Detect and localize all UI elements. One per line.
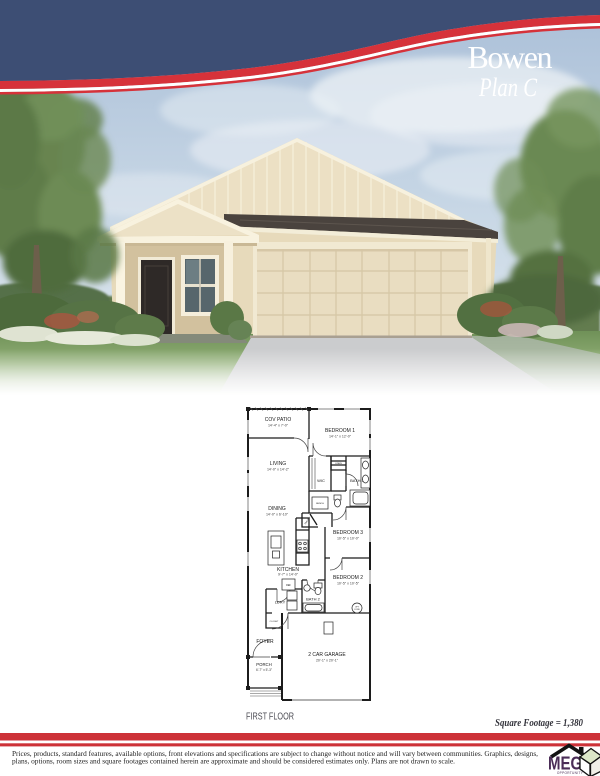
svg-text:6'-7" x 5'-3": 6'-7" x 5'-3" bbox=[256, 668, 272, 672]
svg-text:COND: COND bbox=[354, 609, 360, 611]
svg-text:BENCH: BENCH bbox=[316, 503, 324, 505]
svg-text:BATH 1: BATH 1 bbox=[350, 478, 364, 483]
svg-text:BEDROOM 2: BEDROOM 2 bbox=[333, 575, 363, 581]
svg-text:2 CAR GARAGE: 2 CAR GARAGE bbox=[308, 652, 346, 658]
svg-text:10'-5" x 10'-0": 10'-5" x 10'-0" bbox=[337, 537, 360, 541]
svg-text:14'-1" x 12'-0": 14'-1" x 12'-0" bbox=[329, 435, 352, 439]
svg-text:LINEN: LINEN bbox=[335, 463, 342, 465]
svg-text:9'-7" x 14'-0": 9'-7" x 14'-0" bbox=[278, 573, 299, 577]
svg-text:10'-5" x 10'-5": 10'-5" x 10'-5" bbox=[337, 582, 360, 586]
svg-text:BATH 2: BATH 2 bbox=[306, 597, 320, 602]
svg-text:20'-1" x 20'-1": 20'-1" x 20'-1" bbox=[316, 659, 339, 663]
svg-text:Square Footage = 1,380: Square Footage = 1,380 bbox=[495, 717, 583, 729]
svg-text:14'-0" x 6'-10": 14'-0" x 6'-10" bbox=[266, 513, 289, 517]
svg-text:FIRST FLOOR: FIRST FLOOR bbox=[246, 712, 294, 723]
svg-text:14'-4" x 7'-0": 14'-4" x 7'-0" bbox=[268, 424, 289, 428]
svg-text:FOYER: FOYER bbox=[256, 639, 274, 645]
svg-text:OPPORTUNITY: OPPORTUNITY bbox=[557, 771, 584, 775]
svg-text:BEDROOM 1: BEDROOM 1 bbox=[325, 428, 355, 434]
svg-text:BEDROOM 3: BEDROOM 3 bbox=[333, 530, 363, 536]
svg-text:14'-0" x 14'-2": 14'-0" x 14'-2" bbox=[267, 468, 290, 472]
svg-text:CLOSET: CLOSET bbox=[270, 621, 279, 623]
svg-text:LIVING: LIVING bbox=[270, 461, 287, 467]
svg-text:COV PATIO: COV PATIO bbox=[265, 417, 292, 423]
svg-text:WIC: WIC bbox=[317, 478, 325, 483]
svg-text:PANTRY: PANTRY bbox=[304, 516, 312, 525]
svg-text:plans, options, room sizes and: plans, options, room sizes and square fo… bbox=[12, 758, 455, 766]
svg-text:PORCH: PORCH bbox=[256, 662, 272, 667]
svg-text:LDRY: LDRY bbox=[275, 600, 286, 605]
svg-text:REF: REF bbox=[286, 584, 291, 587]
svg-text:DINING: DINING bbox=[268, 506, 286, 512]
svg-text:Plan C: Plan C bbox=[478, 73, 537, 102]
svg-text:Bowen: Bowen bbox=[468, 39, 553, 75]
